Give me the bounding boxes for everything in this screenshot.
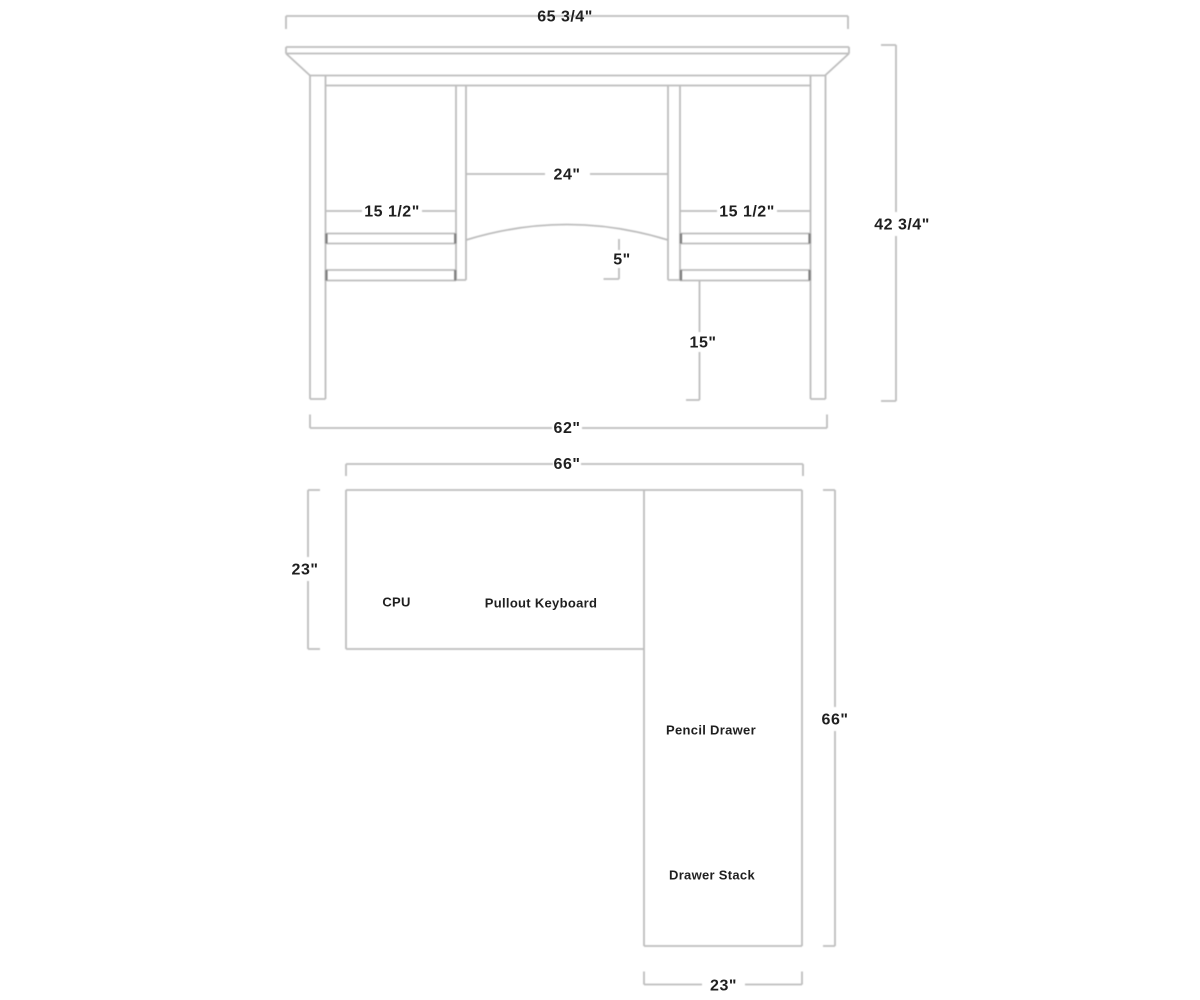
svg-text:15 1/2": 15 1/2" [719,204,775,221]
svg-text:CPU: CPU [382,595,410,610]
svg-text:15": 15" [690,335,717,352]
svg-text:Drawer Stack: Drawer Stack [669,868,755,883]
svg-text:66": 66" [554,456,581,473]
svg-text:23": 23" [710,978,737,995]
svg-text:24": 24" [554,167,581,184]
svg-text:42 3/4": 42 3/4" [874,217,930,234]
svg-text:66": 66" [822,712,849,729]
svg-text:Pencil Drawer: Pencil Drawer [666,723,756,738]
svg-text:65 3/4": 65 3/4" [537,9,593,26]
svg-text:62": 62" [554,420,581,437]
svg-text:5": 5" [613,252,630,269]
svg-text:Pullout Keyboard: Pullout Keyboard [485,596,597,611]
svg-text:15 1/2": 15 1/2" [364,204,420,221]
svg-text:23": 23" [292,562,319,579]
